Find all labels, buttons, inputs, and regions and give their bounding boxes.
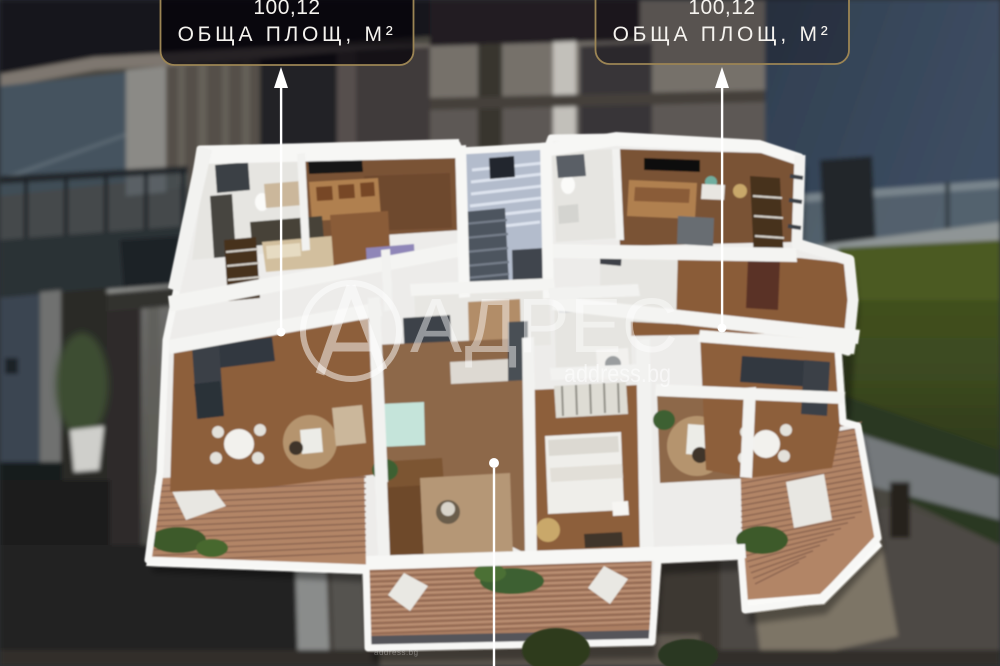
svg-text:100,12: 100,12: [253, 0, 320, 19]
svg-text:ОБЩА ПЛОЩ, М²: ОБЩА ПЛОЩ, М²: [178, 23, 397, 46]
svg-text:address.bg: address.bg: [374, 648, 419, 657]
svg-text:100,12: 100,12: [688, 0, 755, 19]
svg-text:АДРЕС: АДРЕС: [410, 283, 678, 369]
svg-text:ОБЩА ПЛОЩ, М²: ОБЩА ПЛОЩ, М²: [613, 23, 832, 46]
svg-text:address.bg: address.bg: [564, 360, 671, 388]
